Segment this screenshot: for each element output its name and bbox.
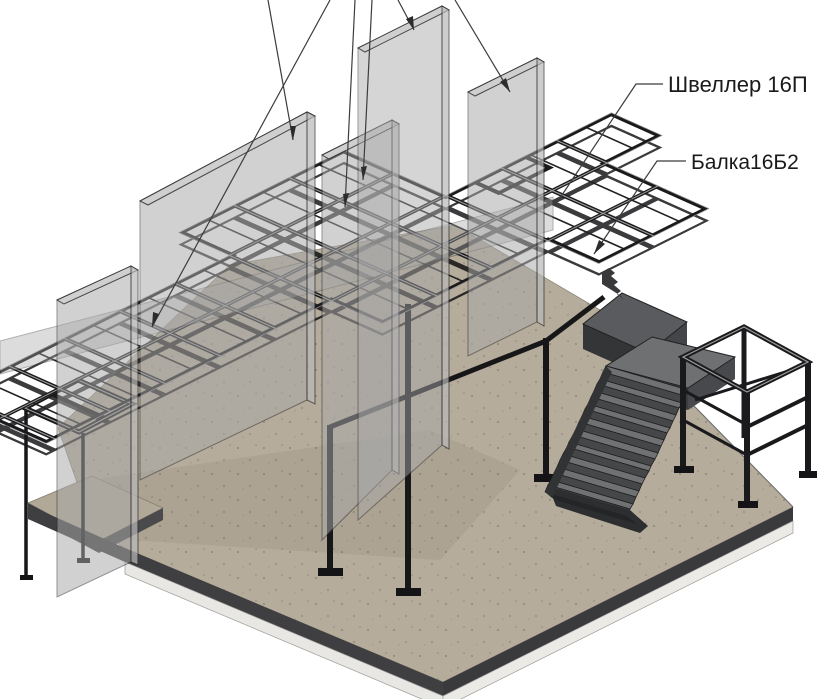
structural-model-viewport[interactable]: Швеллер 16П Балка16Б2 — [0, 0, 817, 699]
wall-panel-right — [468, 58, 544, 356]
wall-panel-left-far — [57, 266, 138, 597]
model-canvas[interactable]: Швеллер 16П Балка16Б2 — [0, 0, 817, 699]
label-channel-16p[interactable]: Швеллер 16П — [668, 72, 808, 97]
wall-panel-middle-top — [358, 6, 449, 520]
label-beam-16b2[interactable]: Балка16Б2 — [691, 151, 799, 174]
